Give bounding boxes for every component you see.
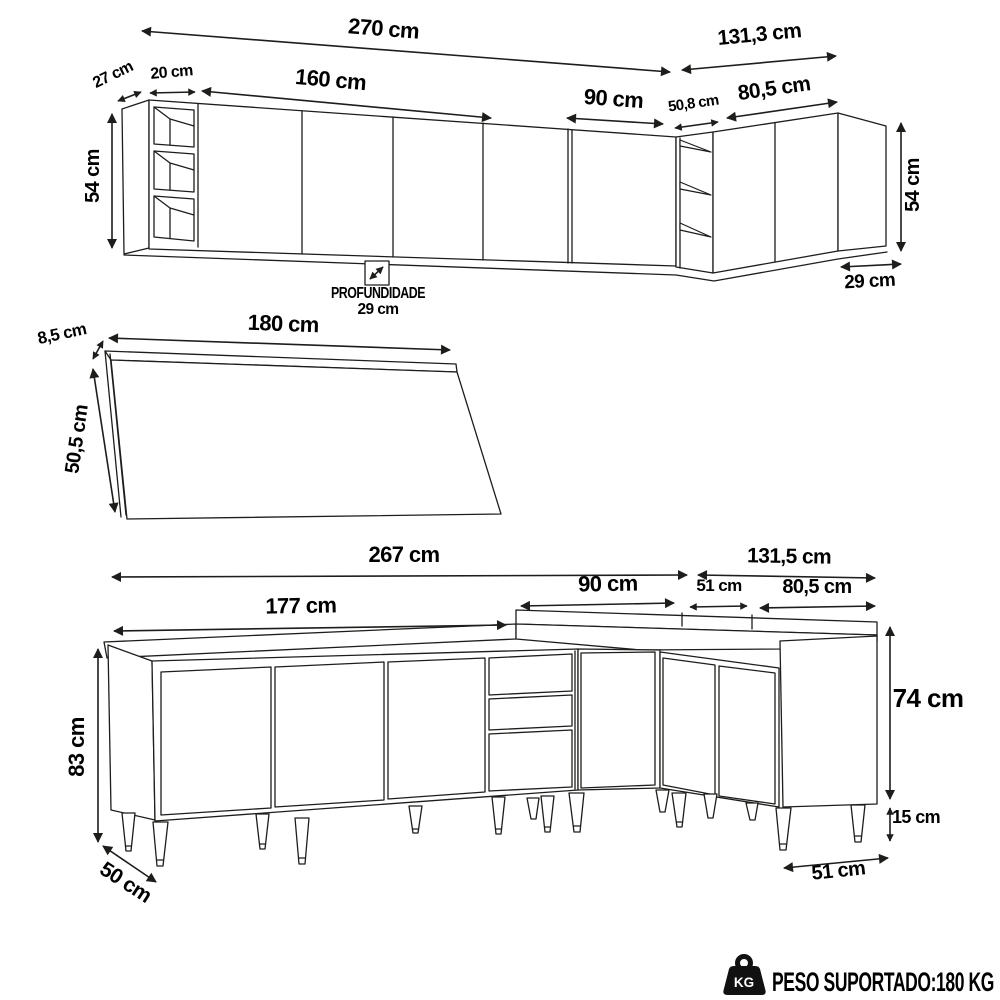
- dim-countertop-width: 180 cm: [109, 310, 450, 350]
- dim-label: 20 cm: [150, 62, 194, 83]
- dim-label: 270 cm: [347, 13, 420, 43]
- kg-icon-label: KG: [734, 975, 754, 990]
- upper-right-side-panel: [838, 113, 886, 251]
- dim-label: 15 cm: [892, 807, 940, 827]
- leg: [851, 805, 865, 842]
- dim-label: 180 cm: [247, 310, 319, 337]
- dim-base-back-right: 80,5 cm: [760, 576, 875, 608]
- leg: [409, 806, 422, 833]
- upper-cabinet-drawing: 270 cm 131,3 cm 27 cm 20 cm 160 cm 90 cm…: [82, 13, 924, 318]
- leg: [569, 793, 584, 832]
- dim-label: 83 cm: [64, 717, 89, 776]
- dim-label: 51 cm: [696, 576, 742, 595]
- dim-upper-depth-right: 29 cm: [841, 264, 901, 293]
- dim-upper-corner-width: 50,8 cm: [667, 92, 720, 128]
- dim-countertop-thickness: 8,5 cm: [36, 319, 103, 359]
- base-cabinet-drawing: 267 cm 131,5 cm 177 cm 90 cm 51 cm 80,5 …: [64, 542, 963, 908]
- dim-upper-door-width: 90 cm: [567, 84, 663, 124]
- depth-callout: PROFUNDIDADE 29 cm: [331, 261, 425, 318]
- dim-upper-height-right: 54 cm: [901, 123, 924, 251]
- base-right-end-panel: [780, 636, 877, 807]
- dim-upper-shelf-width: 20 cm: [150, 62, 195, 93]
- depth-note-value: 29 cm: [358, 301, 399, 318]
- dim-label: 50 cm: [96, 858, 156, 908]
- dim-base-depth-right: 51 cm: [784, 857, 888, 884]
- weight-capacity-text: PESO SUPORTADO:180 KG: [772, 967, 994, 997]
- dim-label: 54 cm: [902, 158, 924, 212]
- dim-label: 131,3 cm: [716, 19, 802, 50]
- weight-capacity-note: KG PESO SUPORTADO:180 KG: [723, 957, 994, 998]
- dim-upper-right-width: 131,3 cm: [682, 19, 836, 70]
- dim-base-depth-left: 50 cm: [96, 846, 156, 908]
- leg: [746, 803, 758, 820]
- leg: [492, 797, 505, 834]
- leg: [527, 798, 539, 819]
- dim-label: 267 cm: [368, 542, 439, 567]
- leg: [776, 808, 791, 850]
- countertop-surface: [111, 360, 501, 519]
- dim-base-doors-width: 177 cm: [114, 592, 506, 631]
- leg: [122, 813, 135, 851]
- leg: [256, 814, 269, 849]
- upper-left-side-panel: [122, 100, 149, 254]
- dim-base-leg-height: 15 cm: [890, 807, 940, 841]
- depth-note-title: PROFUNDIDADE: [331, 285, 425, 302]
- dim-label: 90 cm: [583, 84, 644, 113]
- weight-kg-icon: KG: [723, 957, 765, 996]
- dim-label: 50,8 cm: [667, 92, 720, 116]
- upper-corner-open-unit: [676, 132, 713, 273]
- dim-label: 80,5 cm: [736, 72, 811, 105]
- leg: [704, 794, 717, 818]
- leg: [656, 790, 669, 812]
- base-front-face: [152, 649, 578, 821]
- dim-label: 80,5 cm: [782, 576, 851, 598]
- dim-base-back-corner: 51 cm: [690, 576, 747, 607]
- dim-label: 177 cm: [265, 592, 336, 618]
- dim-upper-height-left: 54 cm: [82, 114, 112, 248]
- furniture-dimension-diagram: 270 cm 131,3 cm 27 cm 20 cm 160 cm 90 cm…: [0, 0, 1000, 1000]
- dim-base-total-height: 83 cm: [64, 649, 98, 842]
- leg: [295, 818, 309, 864]
- dim-upper-right-doors-width: 80,5 cm: [727, 72, 837, 118]
- dim-label: 50,5 cm: [61, 403, 92, 475]
- countertop-drawing: 180 cm 8,5 cm 50,5 cm: [36, 310, 501, 519]
- dim-label: 8,5 cm: [36, 319, 89, 348]
- upper-front-face: [149, 100, 676, 266]
- leg: [153, 822, 168, 866]
- base-corner-face: [578, 649, 660, 790]
- dim-label: 54 cm: [82, 149, 104, 203]
- dim-label: 51 cm: [811, 857, 867, 884]
- dim-label: 90 cm: [578, 570, 638, 596]
- dim-label: 160 cm: [294, 64, 367, 95]
- dim-countertop-depth: 50,5 cm: [61, 369, 115, 512]
- dim-label: 29 cm: [844, 270, 896, 294]
- base-left-side-panel: [108, 645, 155, 820]
- dim-upper-total-width: 270 cm: [142, 13, 670, 72]
- dim-label: 131,5 cm: [747, 544, 831, 568]
- diagram-canvas: 270 cm 131,3 cm 27 cm 20 cm 160 cm 90 cm…: [0, 0, 1000, 1000]
- dim-label: 74 cm: [893, 683, 964, 713]
- dim-label: 27 cm: [90, 58, 136, 92]
- leg: [672, 793, 686, 827]
- dim-upper-side-depth: 27 cm: [90, 58, 141, 101]
- leg: [541, 796, 554, 832]
- dim-base-right-width: 131,5 cm: [698, 544, 875, 578]
- dim-base-body-height: 74 cm: [890, 627, 963, 799]
